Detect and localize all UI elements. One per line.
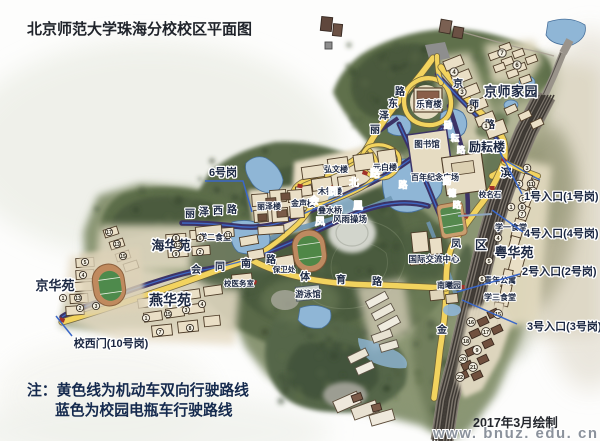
svg-text:北京师范大学珠海分校校区平面图: 北京师范大学珠海分校校区平面图 [27, 20, 252, 38]
svg-text:图书馆: 图书馆 [414, 139, 440, 149]
svg-text:6: 6 [199, 236, 202, 242]
svg-text:东: 东 [388, 97, 398, 110]
svg-text:会: 会 [191, 263, 201, 276]
svg-text:体: 体 [300, 270, 311, 283]
svg-text:会: 会 [309, 194, 319, 207]
svg-text:www. bnuz. edu. cn: www. bnuz. edu. cn [432, 425, 597, 441]
svg-text:1号入口(1号岗): 1号入口(1号岗) [524, 189, 599, 203]
svg-text:国际交流中心: 国际交流中心 [408, 254, 460, 264]
svg-text:11: 11 [225, 233, 231, 239]
svg-text:京师家园: 京师家园 [484, 84, 538, 99]
svg-text:6: 6 [480, 277, 483, 283]
svg-text:同: 同 [328, 186, 338, 198]
svg-text:京华苑: 京华苑 [35, 278, 74, 293]
svg-text:18: 18 [463, 339, 469, 345]
svg-text:泽: 泽 [379, 109, 389, 122]
svg-text:20: 20 [460, 357, 466, 363]
svg-text:粤华苑: 粤华苑 [494, 245, 533, 260]
svg-text:北: 北 [349, 176, 359, 189]
svg-text:15: 15 [120, 254, 126, 260]
svg-text:励: 励 [443, 176, 452, 186]
svg-text:17: 17 [483, 330, 489, 336]
svg-text:海华苑: 海华苑 [151, 238, 190, 253]
svg-text:丽: 丽 [185, 208, 195, 220]
svg-text:校西门(10号岗): 校西门(10号岗) [74, 336, 149, 350]
svg-text:22: 22 [457, 375, 463, 381]
svg-text:3: 3 [185, 308, 188, 314]
svg-text:校医务室: 校医务室 [224, 278, 254, 288]
svg-text:西: 西 [213, 205, 223, 217]
svg-text:路: 路 [398, 179, 408, 190]
svg-text:13: 13 [75, 296, 81, 302]
svg-text:2号入口(2号岗): 2号入口(2号岗) [522, 264, 597, 278]
svg-text:路: 路 [372, 275, 383, 288]
svg-text:风雨操场: 风雨操场 [333, 214, 368, 224]
svg-text:7: 7 [520, 212, 523, 218]
svg-text:弘文楼: 弘文楼 [324, 164, 348, 174]
svg-text:16: 16 [468, 320, 474, 326]
svg-text:21: 21 [470, 365, 476, 371]
svg-text:游泳馆: 游泳馆 [295, 289, 321, 299]
svg-text:南曦园: 南曦园 [437, 280, 461, 290]
svg-text:燕华苑: 燕华苑 [149, 292, 191, 308]
svg-text:丽泽楼: 丽泽楼 [257, 201, 281, 211]
svg-text:路: 路 [370, 167, 381, 180]
svg-text:百年纪念广场: 百年纪念广场 [411, 172, 459, 182]
svg-text:2: 2 [79, 306, 82, 312]
svg-text:励: 励 [444, 120, 453, 130]
svg-text:4: 4 [82, 273, 85, 279]
svg-text:区: 区 [475, 238, 487, 252]
svg-text:1: 1 [62, 296, 65, 302]
svg-text:17: 17 [106, 230, 112, 236]
svg-text:6号岗: 6号岗 [209, 165, 237, 179]
svg-text:4: 4 [201, 302, 204, 308]
svg-text:1: 1 [509, 205, 512, 211]
svg-text:7: 7 [159, 330, 162, 336]
svg-text:学三食堂: 学三食堂 [484, 292, 516, 302]
svg-text:凰: 凰 [353, 200, 363, 212]
svg-text:同: 同 [215, 261, 225, 273]
svg-text:注：黄色线为机动车双向行驶路线: 注：黄色线为机动车双向行驶路线 [27, 381, 249, 399]
svg-text:路: 路 [227, 203, 238, 216]
svg-text:3: 3 [525, 166, 528, 172]
svg-text:凤: 凤 [315, 216, 325, 228]
svg-text:蓝色为校园电瓶车行驶路线: 蓝色为校园电瓶车行驶路线 [55, 401, 233, 419]
svg-text:5: 5 [84, 260, 87, 266]
svg-text:德: 德 [448, 188, 457, 198]
svg-text:丽: 丽 [370, 124, 380, 136]
svg-text:3号入口(3号岗): 3号入口(3号岗) [527, 319, 600, 333]
svg-text:路: 路 [453, 200, 462, 210]
svg-text:5: 5 [487, 259, 490, 265]
svg-text:12: 12 [175, 243, 181, 249]
svg-text:9: 9 [175, 252, 178, 258]
svg-text:3: 3 [95, 304, 98, 310]
svg-text:南: 南 [241, 257, 251, 270]
svg-text:校名石: 校名石 [479, 189, 502, 199]
svg-text:1: 1 [145, 316, 148, 322]
svg-text:2: 2 [199, 250, 202, 256]
svg-text:路: 路 [395, 85, 406, 98]
svg-text:育: 育 [336, 273, 346, 286]
svg-text:路: 路 [266, 253, 277, 266]
svg-text:9: 9 [475, 348, 478, 354]
svg-text:耘: 耘 [451, 133, 460, 143]
svg-text:路: 路 [457, 145, 466, 155]
svg-text:8: 8 [189, 326, 192, 332]
svg-text:泽: 泽 [199, 205, 209, 218]
svg-text:金: 金 [436, 323, 448, 336]
svg-text:4号入口(4号岗): 4号入口(4号岗) [524, 226, 599, 240]
svg-text:凤: 凤 [451, 238, 461, 250]
svg-text:15: 15 [165, 312, 171, 318]
svg-text:乐育楼: 乐育楼 [416, 99, 442, 109]
svg-text:励耘楼: 励耘楼 [469, 139, 505, 154]
svg-text:13: 13 [114, 242, 120, 248]
